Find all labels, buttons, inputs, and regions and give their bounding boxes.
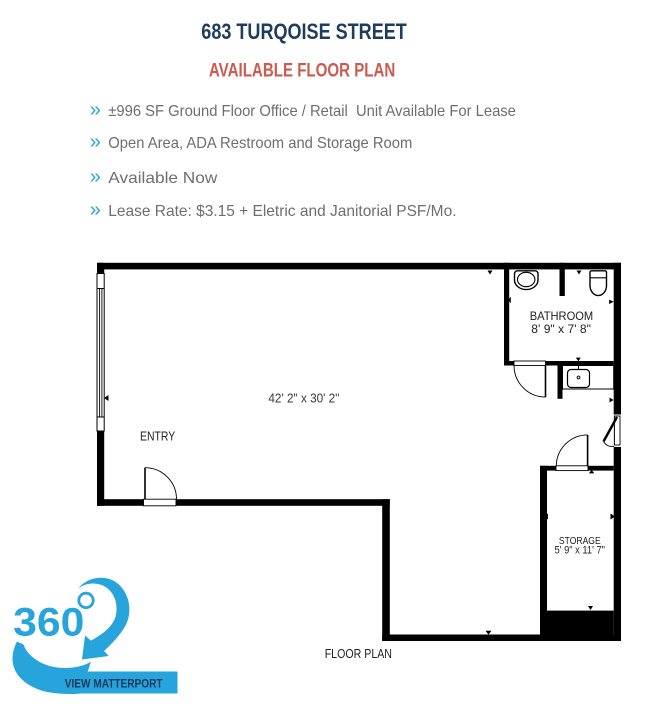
svg-text:»: »: [90, 166, 101, 188]
svg-text:»: »: [90, 199, 101, 221]
svg-text:360: 360: [13, 601, 84, 645]
svg-text:»: »: [90, 99, 101, 121]
svg-text:Available Now: Available Now: [108, 170, 217, 187]
svg-text:FLOOR PLAN: FLOOR PLAN: [325, 646, 392, 661]
svg-text:5' 9" x 11' 7": 5' 9" x 11' 7": [555, 545, 606, 557]
svg-text:ENTRY: ENTRY: [140, 428, 175, 443]
svg-text:Open Area, ADA Restroom and St: Open Area, ADA Restroom and Storage Room: [108, 135, 412, 152]
svg-text:AVAILABLE FLOOR PLAN: AVAILABLE FLOOR PLAN: [209, 61, 395, 82]
svg-text:VIEW MATTERPORT: VIEW MATTERPORT: [65, 676, 163, 690]
svg-text:683 TURQOISE STREET: 683 TURQOISE STREET: [201, 19, 407, 44]
svg-text:8' 9" x 7' 8": 8' 9" x 7' 8": [531, 323, 591, 336]
svg-text:±996 SF Ground Floor Office /: ±996 SF Ground Floor Office / Retail Uni…: [108, 103, 516, 120]
svg-text:42' 2" x 30' 2": 42' 2" x 30' 2": [268, 390, 339, 405]
svg-text:»: »: [90, 131, 101, 153]
svg-text:Lease Rate: $3.15 + Eletric an: Lease Rate: $3.15 + Eletric and Janitori…: [108, 203, 456, 220]
svg-text:BATHROOM: BATHROOM: [530, 310, 594, 323]
